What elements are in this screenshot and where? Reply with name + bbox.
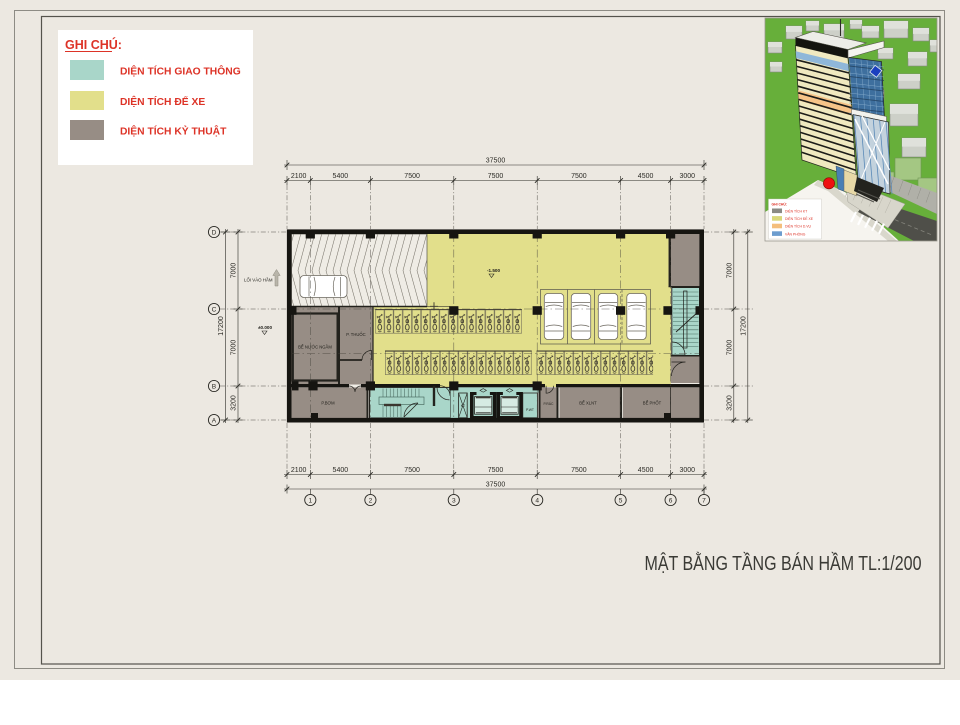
svg-text:17200: 17200 <box>218 316 225 336</box>
svg-text:C: C <box>212 307 217 314</box>
svg-text:P. THUỐC: P. THUỐC <box>346 332 365 337</box>
svg-text:MẬT BẰNG TẦNG BÁN HẦM TL:1/20: MẬT BẰNG TẦNG BÁN HẦM TL:1/200 <box>645 551 922 575</box>
svg-text:7: 7 <box>702 498 706 505</box>
svg-text:DIỆN TÍCH KT: DIỆN TÍCH KT <box>785 209 807 214</box>
svg-text:DIỆN TÍCH ĐỂ XE: DIỆN TÍCH ĐỂ XE <box>120 95 205 108</box>
svg-text:P.RÁC: P.RÁC <box>544 402 554 406</box>
svg-text:3000: 3000 <box>680 467 696 474</box>
svg-text:37500: 37500 <box>486 158 506 165</box>
svg-text:7000: 7000 <box>231 263 238 279</box>
svg-text:KT: KT <box>461 404 465 408</box>
svg-text:4500: 4500 <box>638 173 654 180</box>
svg-text:17200: 17200 <box>740 316 747 336</box>
svg-text:DIỆN TÍCH D.VỤ: DIỆN TÍCH D.VỤ <box>785 224 811 229</box>
svg-text:DIỆN TÍCH ĐỄ XE: DIỆN TÍCH ĐỄ XE <box>785 216 814 221</box>
svg-text:7500: 7500 <box>404 173 420 180</box>
svg-text:P.WT: P.WT <box>526 408 534 412</box>
svg-text:DIỆN TÍCH KỶ THUẬT: DIỆN TÍCH KỶ THUẬT <box>120 125 227 138</box>
svg-text:5400: 5400 <box>333 467 349 474</box>
svg-text:GHI CHÚ:: GHI CHÚ: <box>772 202 787 207</box>
svg-text:-1.500: -1.500 <box>487 268 500 273</box>
svg-text:37500: 37500 <box>486 482 506 489</box>
svg-text:VĂN PHÒNG: VĂN PHÒNG <box>785 231 806 236</box>
svg-text:2100: 2100 <box>291 467 307 474</box>
svg-text:A: A <box>212 418 217 425</box>
svg-text:LỐI VÀO HẦM: LỐI VÀO HẦM <box>244 278 273 283</box>
svg-text:7500: 7500 <box>404 467 420 474</box>
svg-text:BỂ NƯỚC NGẦM: BỂ NƯỚC NGẦM <box>298 345 332 350</box>
svg-text:3000: 3000 <box>680 173 696 180</box>
svg-text:1: 1 <box>308 498 312 505</box>
svg-text:3200: 3200 <box>726 395 733 411</box>
svg-text:3: 3 <box>452 498 456 505</box>
svg-text:BỂ PHỐT: BỂ PHỐT <box>643 401 662 406</box>
svg-text:7500: 7500 <box>571 467 587 474</box>
svg-text:6: 6 <box>669 498 673 505</box>
svg-text:4500: 4500 <box>638 467 654 474</box>
svg-text:DIỆN TÍCH GIAO THÔNG: DIỆN TÍCH GIAO THÔNG <box>120 65 241 78</box>
svg-text:5: 5 <box>619 498 623 505</box>
svg-text:7000: 7000 <box>231 340 238 356</box>
svg-text:7500: 7500 <box>488 467 504 474</box>
svg-text:7000: 7000 <box>726 340 733 356</box>
svg-text:7000: 7000 <box>726 263 733 279</box>
svg-text:5400: 5400 <box>333 173 349 180</box>
svg-text:2100: 2100 <box>291 173 307 180</box>
svg-text:7500: 7500 <box>571 173 587 180</box>
svg-text:P.BƠM: P.BƠM <box>321 401 335 406</box>
svg-text:3200: 3200 <box>231 395 238 411</box>
svg-text:4: 4 <box>535 498 539 505</box>
svg-text:2: 2 <box>369 498 373 505</box>
svg-text:GHI CHÚ:: GHI CHÚ: <box>65 37 122 52</box>
svg-text:±0.000: ±0.000 <box>258 325 272 330</box>
svg-text:B: B <box>212 384 217 391</box>
svg-text:7500: 7500 <box>488 173 504 180</box>
svg-text:D: D <box>212 230 217 237</box>
svg-text:BỂ XLNT: BỂ XLNT <box>579 401 597 406</box>
